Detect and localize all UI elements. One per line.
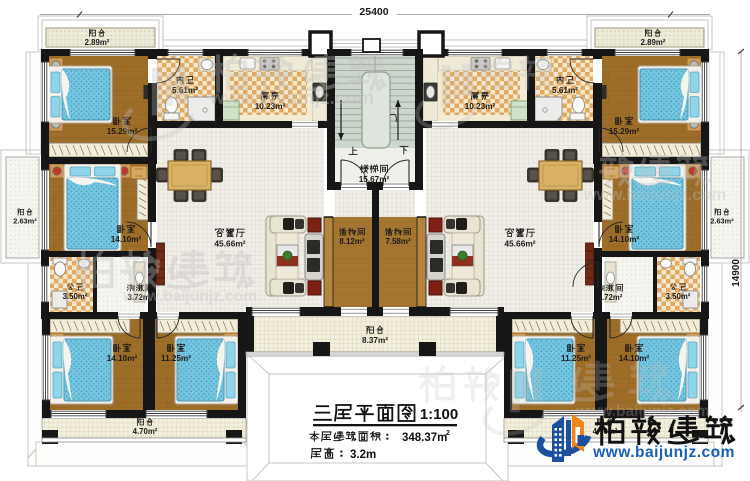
- svg-text:15.29m²: 15.29m²: [609, 127, 640, 136]
- svg-text:2: 2: [446, 430, 450, 437]
- svg-text:2.63m²: 2.63m²: [710, 217, 734, 226]
- svg-text:8.37m²: 8.37m²: [362, 336, 388, 345]
- svg-text:14.10m²: 14.10m²: [107, 354, 138, 363]
- svg-text:11.25m²: 11.25m²: [161, 354, 191, 363]
- svg-text:2.63m²: 2.63m²: [13, 217, 37, 226]
- svg-text:14.10m²: 14.10m²: [619, 354, 650, 363]
- svg-text:5.61m²: 5.61m²: [552, 86, 578, 95]
- svg-text:www.baijunjz.com: www.baijunjz.com: [122, 288, 257, 305]
- svg-text:348.37m: 348.37m: [402, 432, 447, 444]
- svg-text:25400: 25400: [359, 6, 388, 18]
- svg-text:2.89m²: 2.89m²: [85, 38, 110, 47]
- svg-text:45.66m²: 45.66m²: [214, 239, 245, 249]
- svg-text:14.10m²: 14.10m²: [111, 235, 142, 244]
- svg-text:www.baijunjz.com: www.baijunjz.com: [583, 186, 726, 204]
- svg-text:45.66m²: 45.66m²: [504, 239, 535, 249]
- svg-text:www.baijunjz.com: www.baijunjz.com: [209, 88, 374, 109]
- svg-text:15.67m²: 15.67m²: [359, 175, 390, 184]
- svg-text:14900: 14900: [731, 259, 742, 287]
- svg-text:14.10m²: 14.10m²: [609, 235, 640, 244]
- svg-text:1:100: 1:100: [420, 406, 458, 423]
- svg-text:2.89m²: 2.89m²: [641, 38, 666, 47]
- svg-text:3.72m²: 3.72m²: [598, 293, 623, 302]
- svg-text:7.58m²: 7.58m²: [385, 237, 411, 246]
- svg-text:11.25m²: 11.25m²: [561, 354, 591, 363]
- svg-text:8.12m²: 8.12m²: [339, 237, 365, 246]
- svg-text:4.70m²: 4.70m²: [133, 427, 158, 436]
- svg-text:3.50m²: 3.50m²: [63, 292, 88, 301]
- svg-text:3.50m²: 3.50m²: [666, 292, 691, 301]
- svg-text:www.baijunjz.com: www.baijunjz.com: [592, 444, 735, 461]
- svg-text:10.23m²: 10.23m²: [465, 102, 496, 111]
- svg-text:3.2m: 3.2m: [350, 449, 376, 461]
